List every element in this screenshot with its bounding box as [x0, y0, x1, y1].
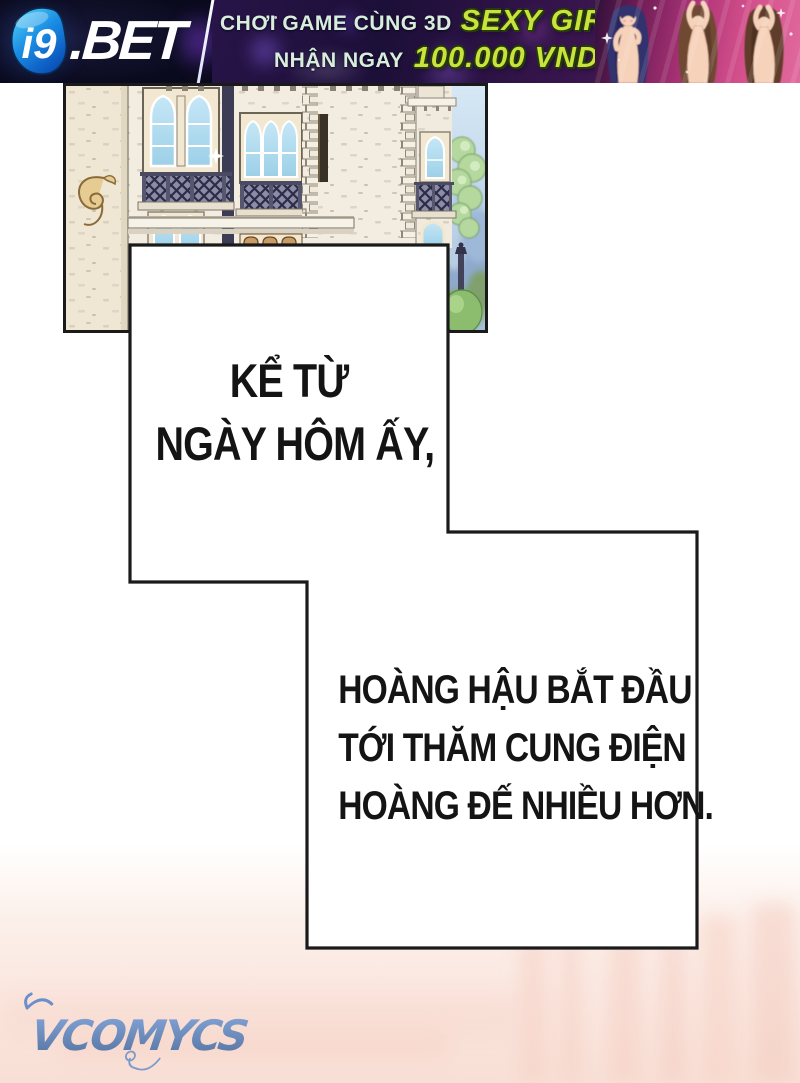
promo-line1-highlight: SEXY GIRL	[461, 5, 595, 38]
narration-2-line-3: HOÀNG ĐẾ NHIỀU HƠN.	[338, 777, 666, 835]
narration-1-line-2: NGÀY HÔM ẤY,	[155, 412, 422, 475]
anime-girls-illustration	[595, 0, 800, 83]
faded-pillar-streak	[752, 903, 794, 1083]
promo-line2-highlight: 100.000 VND	[414, 42, 595, 75]
promo-line2-text: NHẬN NGAY	[274, 49, 404, 73]
balcony-center	[236, 181, 306, 216]
narration-1-line-1: KỂ TỪ	[155, 349, 422, 412]
narration-2-line-2: TỚI THĂM CUNG ĐIỆN	[338, 719, 666, 777]
watermark: VCOMYCS	[20, 988, 300, 1083]
narration-2: HOÀNG HẬU BẮT ĐẦU TỚI THĂM CUNG ĐIỆN HOÀ…	[338, 661, 666, 835]
quoin-chain	[302, 86, 318, 238]
narration-box-outline	[126, 241, 702, 953]
logo-mark-text: i9	[21, 20, 57, 67]
cornice	[128, 216, 354, 234]
gothic-window-left	[143, 88, 219, 174]
watermark-text: VCOMYCS	[28, 1011, 251, 1060]
faded-pillar-streak	[662, 937, 684, 1083]
sparkle-icon	[601, 5, 793, 74]
anime-girl-figure	[744, 6, 783, 83]
gothic-window-triple	[240, 113, 302, 183]
i9bet-logo-icon: i9	[8, 5, 70, 78]
ad-banner-girls-section	[595, 0, 800, 83]
logo-suffix-text: .BET	[68, 9, 186, 72]
gothic-window-right	[420, 132, 450, 182]
promo-line1-text: CHƠI GAME CÙNG 3D	[220, 12, 452, 36]
promo-line-1: CHƠI GAME CÙNG 3D SEXY GIRL	[220, 5, 595, 38]
balcony-right	[412, 182, 456, 218]
promo-line-2: NHẬN NGAY 100.000 VND	[274, 42, 595, 75]
narration-1: KỂ TỪ NGÀY HÔM ẤY,	[155, 349, 422, 475]
faded-pillar-streak	[520, 937, 546, 1083]
anime-girl-figure	[678, 3, 717, 83]
faded-pillar-streak	[610, 931, 640, 1083]
ad-banner-brand-section: i9 .BET	[0, 0, 212, 83]
ad-banner[interactable]: i9 .BET CHƠI GAME CÙNG 3D SEXY GIRL NHẬN…	[0, 0, 800, 83]
ad-banner-promo-section: CHƠI GAME CÙNG 3D SEXY GIRL NHẬN NGAY 10…	[212, 0, 595, 83]
anime-girl-figure	[607, 5, 648, 83]
narration-2-line-1: HOÀNG HẬU BẮT ĐẦU	[338, 661, 666, 719]
watermark-flourish	[25, 994, 54, 1008]
balcony-left	[138, 172, 234, 210]
webtoon-reader-page: i9 .BET CHƠI GAME CÙNG 3D SEXY GIRL NHẬN…	[0, 0, 800, 1083]
faded-pillar-streak	[702, 915, 736, 1083]
